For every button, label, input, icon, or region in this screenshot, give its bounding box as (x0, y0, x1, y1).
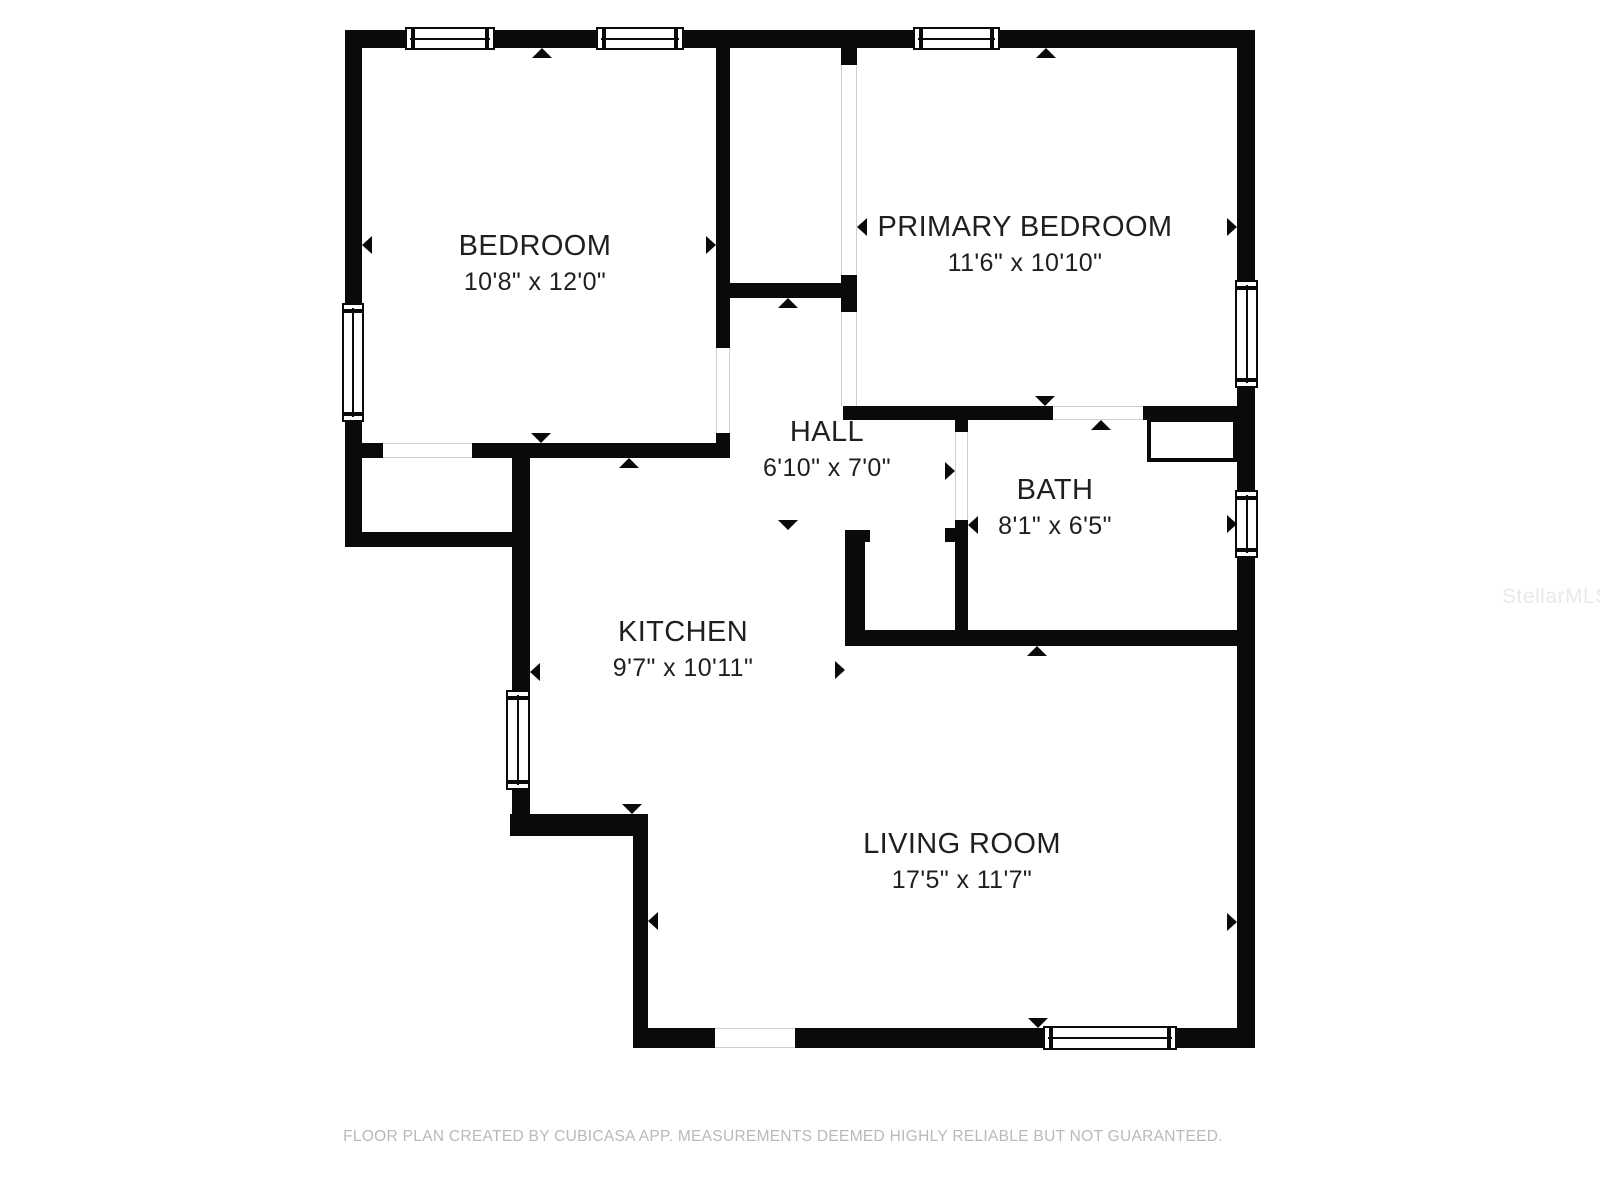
window-center-line (517, 695, 519, 785)
floor-plan-canvas: BEDROOM10'8" x 12'0"PRIMARY BEDROOM11'6"… (0, 0, 1600, 1200)
window (913, 27, 1000, 50)
door-opening (383, 443, 472, 458)
room-label-kitchen: KITCHEN9'7" x 10'11" (613, 618, 753, 681)
window (596, 27, 684, 50)
door-opening (955, 432, 968, 520)
wall-marker-arrow-icon (530, 663, 540, 681)
room-label-bath: BATH8'1" x 6'5" (998, 476, 1112, 539)
room-dimensions: 9'7" x 10'11" (613, 656, 753, 681)
wall-segment (845, 530, 865, 646)
wall-marker-arrow-icon (619, 458, 639, 468)
wall-segment (345, 532, 530, 547)
room-name: BEDROOM (459, 232, 612, 261)
wall-marker-arrow-icon (531, 433, 551, 443)
window-center-line (918, 38, 995, 40)
window (1235, 490, 1258, 558)
door-opening (716, 348, 730, 433)
window (506, 690, 530, 790)
wall-marker-arrow-icon (1227, 515, 1237, 533)
room-dimensions: 6'10" x 7'0" (763, 456, 891, 481)
wall-marker-arrow-icon (835, 661, 845, 679)
door-opening (841, 65, 857, 275)
window (405, 27, 495, 50)
wall-marker-arrow-icon (1227, 913, 1237, 931)
room-dimensions: 17'5" x 11'7" (863, 868, 1061, 893)
wall-segment (633, 836, 648, 1048)
room-dimensions: 10'8" x 12'0" (459, 270, 612, 295)
door-opening (1053, 406, 1143, 420)
wall-segment (845, 630, 1237, 646)
wall-marker-arrow-icon (532, 48, 552, 58)
room-name: BATH (998, 476, 1112, 505)
wall-marker-arrow-icon (1027, 646, 1047, 656)
wall-marker-arrow-icon (778, 298, 798, 308)
window-center-line (1246, 285, 1248, 383)
wall-marker-arrow-icon (1035, 396, 1055, 406)
window (342, 303, 364, 422)
wall-marker-arrow-icon (1091, 420, 1111, 430)
room-label-bedroom: BEDROOM10'8" x 12'0" (459, 232, 612, 295)
wall-marker-arrow-icon (857, 218, 867, 236)
wall-marker-arrow-icon (945, 462, 955, 480)
wall-segment (730, 283, 843, 298)
window-center-line (1048, 1037, 1172, 1039)
wall-marker-arrow-icon (706, 236, 716, 254)
wall-marker-arrow-icon (968, 516, 978, 534)
window-center-line (1246, 495, 1248, 553)
room-dimensions: 8'1" x 6'5" (998, 514, 1112, 539)
wall-marker-arrow-icon (1028, 1018, 1048, 1028)
stellar-mls-watermark: StellarMLS (1502, 585, 1600, 609)
room-name: LIVING ROOM (863, 830, 1061, 859)
window (1043, 1026, 1177, 1050)
window-center-line (352, 308, 354, 417)
window-center-line (410, 38, 490, 40)
wall-marker-arrow-icon (778, 520, 798, 530)
wall-segment (510, 814, 648, 836)
wall-segment (945, 528, 955, 542)
footer-disclaimer-text: FLOOR PLAN CREATED BY CUBICASA APP. MEAS… (343, 1128, 1223, 1146)
room-name: KITCHEN (613, 618, 753, 647)
built-in-closet-outline (1147, 418, 1237, 462)
door-opening (715, 1028, 795, 1048)
wall-segment (345, 30, 362, 547)
room-dimensions: 11'6" x 10'10" (878, 251, 1173, 276)
wall-marker-arrow-icon (1227, 218, 1237, 236)
window-center-line (601, 38, 679, 40)
room-name: PRIMARY BEDROOM (878, 213, 1173, 242)
room-label-living-room: LIVING ROOM17'5" x 11'7" (863, 830, 1061, 893)
room-label-primary-bedroom: PRIMARY BEDROOM11'6" x 10'10" (878, 213, 1173, 276)
room-label-hall: HALL6'10" x 7'0" (763, 418, 891, 481)
wall-marker-arrow-icon (1036, 48, 1056, 58)
window (1235, 280, 1258, 388)
wall-marker-arrow-icon (622, 804, 642, 814)
room-name: HALL (763, 418, 891, 447)
door-opening (841, 312, 857, 406)
wall-segment (865, 530, 870, 542)
wall-marker-arrow-icon (648, 912, 658, 930)
wall-marker-arrow-icon (362, 236, 372, 254)
